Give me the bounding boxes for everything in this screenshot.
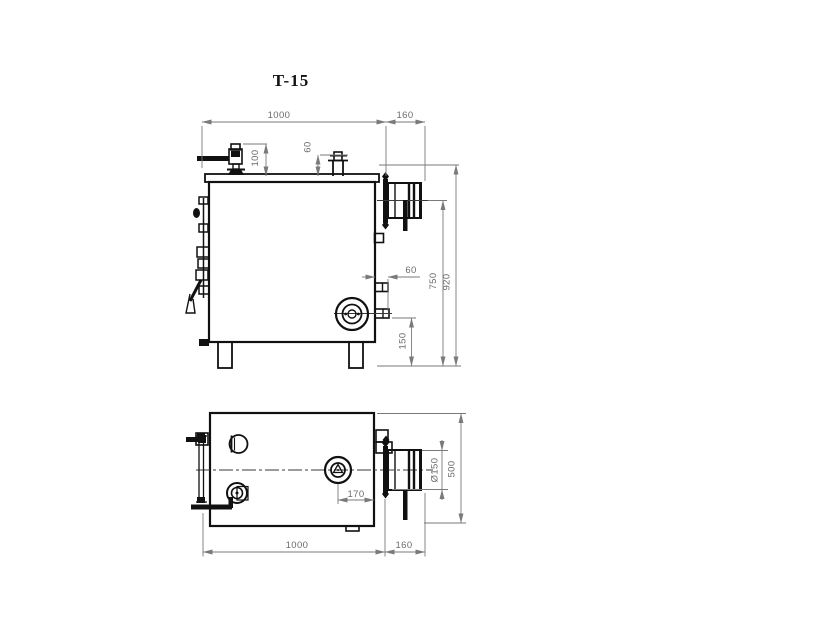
gauge-knob [193, 208, 200, 218]
front-flange-circle [336, 298, 368, 330]
plan-left-bracket [196, 433, 207, 503]
filler-nozzle [328, 152, 348, 176]
dim-flange-offset-label: 170 [347, 489, 364, 500]
front-leg-right [349, 342, 363, 368]
valve-body-fill [231, 151, 240, 157]
dim-side-nozzle-label: 60 [405, 265, 416, 276]
drawing-canvas: T-15 [0, 0, 838, 636]
dim-depth-label: 500 [447, 460, 458, 477]
safety-valve [197, 144, 245, 175]
front-lid [205, 174, 379, 182]
plan-view: 170 Ø150 500 1000 160 [186, 413, 466, 557]
dim-plan-width-label: 1000 [286, 540, 309, 551]
plan-bottom-tab [346, 526, 359, 531]
drawing-title: T-15 [273, 71, 309, 90]
plan-drain-valve [227, 483, 248, 503]
front-outlet-pipe [377, 172, 428, 231]
dim-front-outlet-label: 160 [396, 110, 413, 121]
dim-overall-height-label: 920 [442, 273, 453, 290]
pipe-drain-stub [403, 200, 408, 231]
side-nozzle-upper [375, 283, 388, 292]
corner-drain [199, 339, 209, 346]
level-gauge [186, 197, 209, 313]
technical-drawing: T-15 [0, 0, 838, 636]
front-leg-left [218, 342, 232, 368]
dim-outlet-diameter-label: Ø150 [430, 458, 441, 483]
dim-outlet-axis-label: 750 [428, 272, 439, 289]
plan-outlet-pipe [382, 439, 422, 521]
dim-valve-offset-label: 100 [250, 149, 261, 166]
plan-tank-body [210, 413, 374, 526]
dim-filler-offset-label: 60 [303, 141, 314, 152]
dim-front-width-label: 1000 [268, 110, 291, 121]
pipe-end-cap [419, 450, 422, 490]
dim-plan-outlet-label: 160 [395, 540, 412, 551]
dim-drain-height-label: 150 [398, 332, 409, 349]
pipe-drain-stub [403, 490, 408, 520]
plan-manhole [230, 435, 248, 453]
front-view: 1000 160 100 60 60 150 750 [186, 110, 461, 368]
